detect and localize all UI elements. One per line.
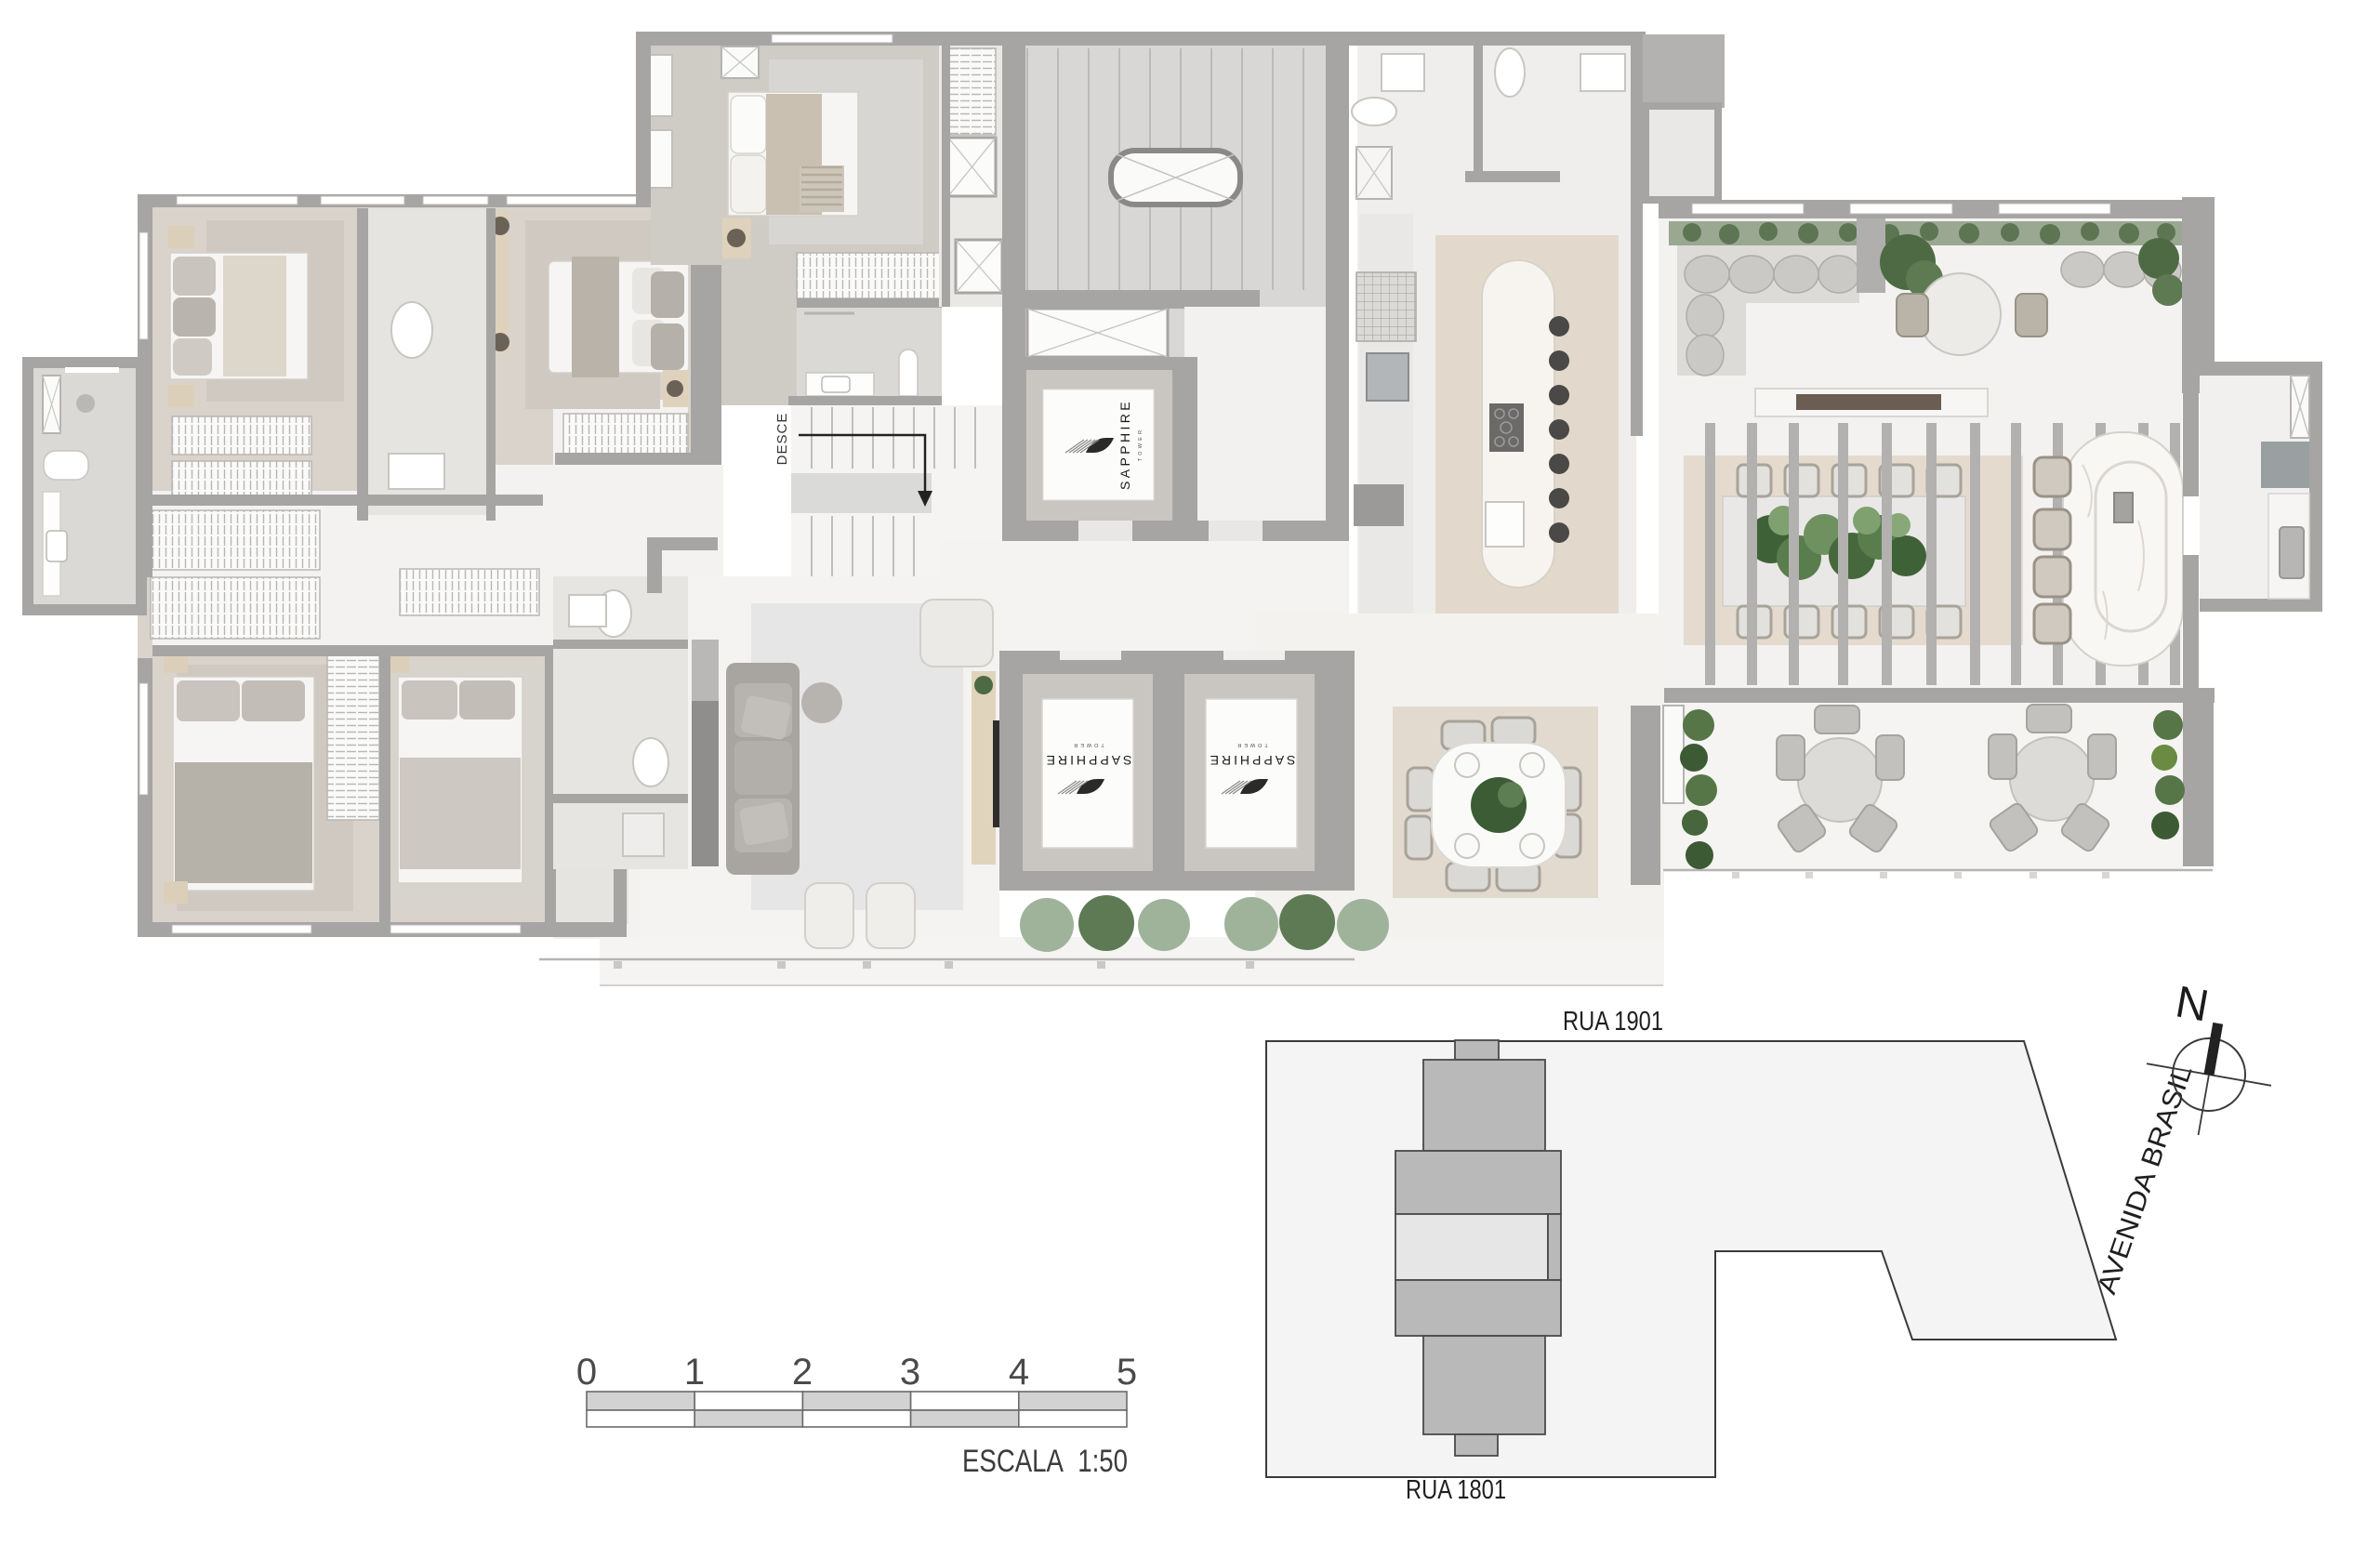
svg-text:ESCALA 1:50: ESCALA 1:50 <box>962 1444 1128 1479</box>
svg-text:N: N <box>2172 977 2212 1031</box>
svg-text:DESCE: DESCE <box>774 413 790 466</box>
svg-text:RUA 1901: RUA 1901 <box>1563 1007 1663 1036</box>
svg-text:3: 3 <box>900 1352 920 1393</box>
svg-text:RUA 1801: RUA 1801 <box>1406 1475 1506 1505</box>
svg-text:0: 0 <box>576 1352 597 1393</box>
svg-text:AVENIDA BRASIL: AVENIDA BRASIL <box>2092 1062 2198 1298</box>
svg-text:SAPPHIRE: SAPPHIRE <box>1117 399 1132 490</box>
svg-text:2: 2 <box>792 1352 813 1393</box>
svg-text:1: 1 <box>684 1352 705 1393</box>
svg-text:4: 4 <box>1009 1352 1029 1393</box>
svg-text:TOWER: TOWER <box>1071 742 1104 747</box>
svg-text:TOWER: TOWER <box>1235 742 1267 747</box>
svg-text:SAPPHIRE: SAPPHIRE <box>1044 753 1132 768</box>
svg-text:TOWER: TOWER <box>1138 428 1144 461</box>
svg-text:SAPPHIRE: SAPPHIRE <box>1208 753 1296 768</box>
svg-text:5: 5 <box>1117 1352 1137 1393</box>
